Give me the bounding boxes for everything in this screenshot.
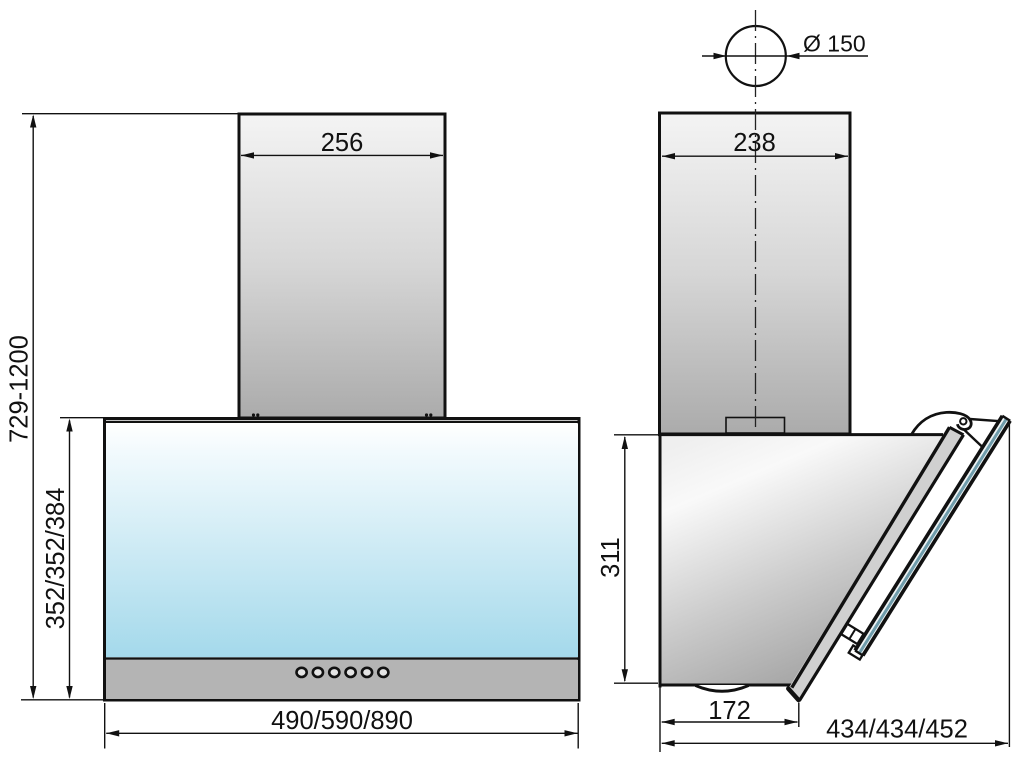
- svg-text:172: 172: [708, 697, 751, 725]
- svg-text:434/434/452: 434/434/452: [826, 716, 968, 744]
- svg-text:Ø 150: Ø 150: [803, 31, 866, 57]
- svg-text:729-1200: 729-1200: [6, 335, 34, 443]
- svg-text:238: 238: [733, 129, 776, 157]
- svg-text:256: 256: [321, 129, 364, 157]
- svg-text:311: 311: [597, 537, 625, 578]
- svg-text:490/590/890: 490/590/890: [271, 707, 413, 735]
- svg-text:352/352/384: 352/352/384: [42, 488, 70, 630]
